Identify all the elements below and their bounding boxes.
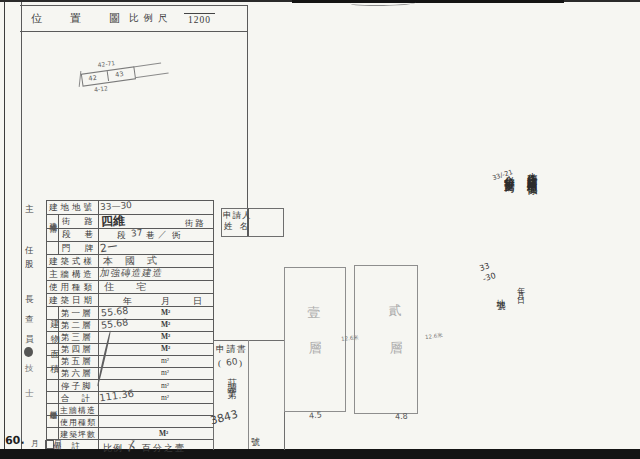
scanned-building-record-page: 位置圖 比例尺 1200 42-71 42 43 4-12 主 任 股 長 查 … — [0, 0, 640, 459]
left-outer-border — [4, 2, 5, 449]
floor4-label: 第四層 — [61, 344, 93, 356]
application-paren-open: ( — [218, 358, 221, 368]
locmap-scale-value: 1200 — [184, 13, 215, 25]
table-left-border — [46, 200, 47, 449]
section-print-3: 衖 — [172, 230, 181, 242]
margin-char-6: 員 — [25, 334, 34, 346]
note-new-lot-number: 33 -30 — [478, 260, 497, 285]
use-type-value: 住宅 — [104, 280, 168, 294]
remark-hand-mark: 〆 — [125, 438, 139, 455]
application-box — [213, 340, 285, 450]
section-row-label: 段巷 — [62, 229, 107, 241]
floorplan-right-side-dim: 12.6米 — [425, 332, 443, 341]
margin-char-8: 士 — [25, 388, 34, 400]
locmap-top-border — [20, 5, 248, 6]
floor2-unit: M² — [161, 320, 170, 329]
margin-stamp-mark — [24, 347, 33, 357]
wall-structure-value: 加強磚造建造 — [99, 267, 164, 280]
floor6-unit: m² — [161, 368, 169, 377]
floorplan-left-width-dim: 4.5 — [309, 410, 323, 420]
builddate-row-label: 建築日期 — [49, 295, 95, 307]
margin-char-7: 技 — [25, 363, 34, 375]
annex-group-label: 附屬建物 — [48, 405, 58, 407]
lot-number-value: 33—30 — [100, 200, 133, 212]
scan-artifact-squiggle — [350, 0, 416, 7]
arcade-unit: m² — [161, 381, 169, 390]
arcade-label: 停子脚 — [61, 381, 93, 393]
grid-line — [46, 241, 213, 242]
builddate-day: 日 — [193, 295, 202, 308]
wall-row-label: 主牆構造 — [49, 269, 95, 281]
margin-char-1: 主 — [25, 204, 34, 216]
lot-row-label: 建地地號 — [49, 202, 95, 214]
application-box-divider — [248, 340, 249, 449]
total-area-value: 111.36 — [98, 388, 134, 404]
floor5-unit: m² — [161, 356, 169, 365]
annex-use-label: 使用種類 — [60, 417, 96, 428]
application-doc-chars: 莊調字第 — [225, 371, 238, 387]
sketch-top-label: 42-71 — [97, 59, 115, 68]
floor2-label: 第二層 — [61, 320, 93, 332]
scan-bottom-bar — [0, 449, 640, 459]
remark-scale-prefix: 比例 — [103, 442, 123, 455]
application-paren-close: ) — [239, 358, 242, 368]
locmap-scale-label: 比例尺 — [129, 12, 173, 25]
grid-line — [46, 214, 213, 215]
sketch-bottom-label: 4-12 — [94, 84, 108, 93]
margin-char-3: 股 — [25, 259, 34, 271]
annex-area-label: 建築坪數 — [60, 429, 96, 440]
group-col-divider-location — [58, 214, 59, 254]
floor3-label: 第三層 — [61, 332, 93, 344]
floor1-label: 第一層 — [61, 308, 93, 320]
note-date-placeholders: 年月日 — [514, 281, 525, 296]
section-print-2: 巷 — [146, 230, 155, 242]
note-old-lot-number: 33/-21 — [491, 168, 514, 182]
floor2-area-value: 55.68 — [100, 316, 128, 330]
application-title: 申請書 — [216, 343, 248, 356]
remark-scale-suffix: 百分之壹 — [142, 442, 186, 455]
sketch-cell-right: 43 — [115, 70, 124, 79]
total-label: 合計 — [61, 393, 102, 405]
scan-top-edge-dark-segment — [292, 0, 564, 3]
annex-area-unit: M² — [159, 429, 168, 438]
remark-row-label: 備註 — [53, 441, 90, 453]
applicant-label-line2: 姓名 — [224, 221, 255, 233]
annex-wall-label: 主牆構造 — [60, 405, 96, 416]
use-row-label: 使用種類 — [49, 282, 95, 294]
application-number-suffix: 號 — [251, 436, 260, 449]
floorplan-right-width-dim: 4.8 — [395, 412, 408, 422]
builddate-month: 月 — [161, 295, 170, 308]
floor4-unit: M² — [161, 344, 170, 353]
style-row-label: 建築式樣 — [49, 256, 95, 268]
section-hand-slash: ／ — [158, 228, 167, 241]
locmap-right-border — [247, 5, 248, 236]
margin-char-2: 任 — [25, 245, 34, 257]
street-name-value: 四維 — [101, 212, 126, 230]
area-group-label: 建物面積 — [48, 312, 61, 372]
floorplan-left-label: 壹層 — [304, 295, 325, 368]
left-inner-border — [21, 2, 22, 449]
floor3-unit: M² — [161, 332, 170, 341]
section-print-1: 段 — [117, 230, 126, 242]
locmap-header-bottom-border — [20, 31, 248, 32]
note-column-1: 本件建物之建築執照基地號係 — [526, 164, 540, 177]
sketch-extension-line-top — [133, 63, 161, 68]
margin-char-4: 長 — [25, 294, 34, 306]
floor6-label: 第六層 — [61, 368, 93, 380]
floor1-unit: M² — [161, 308, 170, 317]
street-print-suffix: 街路 — [185, 218, 206, 230]
application-year-hand: 60 — [225, 356, 238, 367]
total-unit: m² — [161, 393, 169, 402]
margin-date-year: 60. — [5, 434, 25, 448]
margin-date-month: 月 — [31, 438, 39, 449]
floorplan-right-label: 貳層 — [385, 293, 406, 370]
margin-char-5: 查 — [25, 314, 34, 326]
location-group-label: 建物座落 — [48, 216, 58, 220]
note-lot-suffix: 地號 — [494, 292, 507, 296]
section-hand-number: 37 — [131, 228, 143, 239]
locmap-hand-sketch: 42-71 42 43 4-12 — [78, 51, 183, 107]
sketch-extension-line-bottom — [135, 73, 169, 79]
floor5-label: 第五層 — [61, 356, 93, 368]
sketch-cell-left: 42 — [88, 74, 97, 83]
